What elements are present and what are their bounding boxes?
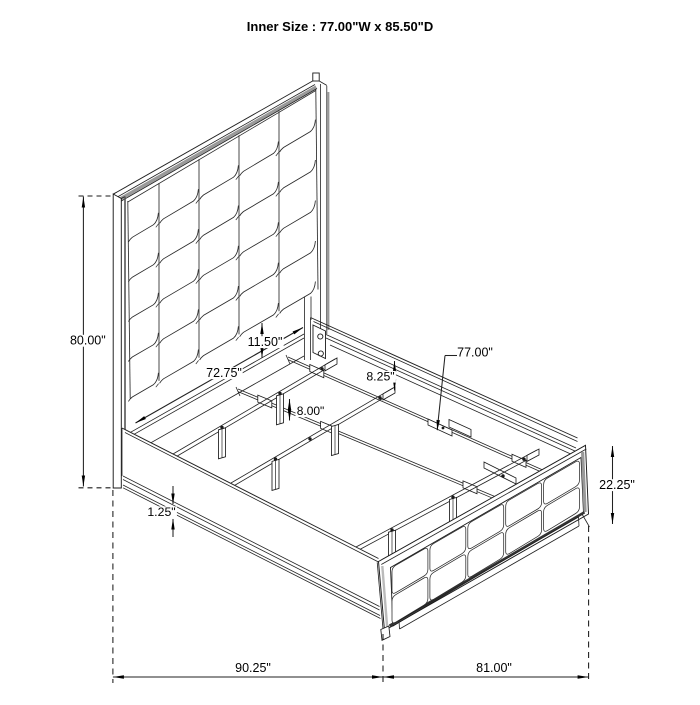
svg-text:90.25": 90.25" <box>235 661 271 675</box>
svg-text:22.25": 22.25" <box>599 478 635 492</box>
svg-text:72.75": 72.75" <box>206 366 242 380</box>
svg-text:1.25": 1.25" <box>147 505 175 519</box>
svg-text:80.00": 80.00" <box>70 334 106 348</box>
svg-text:77.00": 77.00" <box>457 346 493 360</box>
svg-text:11.50": 11.50" <box>248 335 283 349</box>
svg-text:8.00": 8.00" <box>297 404 325 418</box>
svg-text:81.00": 81.00" <box>476 661 512 675</box>
svg-text:Inner Size : 77.00"W x 85.50"D: Inner Size : 77.00"W x 85.50"D <box>247 19 433 34</box>
svg-text:8.25": 8.25" <box>366 370 394 384</box>
